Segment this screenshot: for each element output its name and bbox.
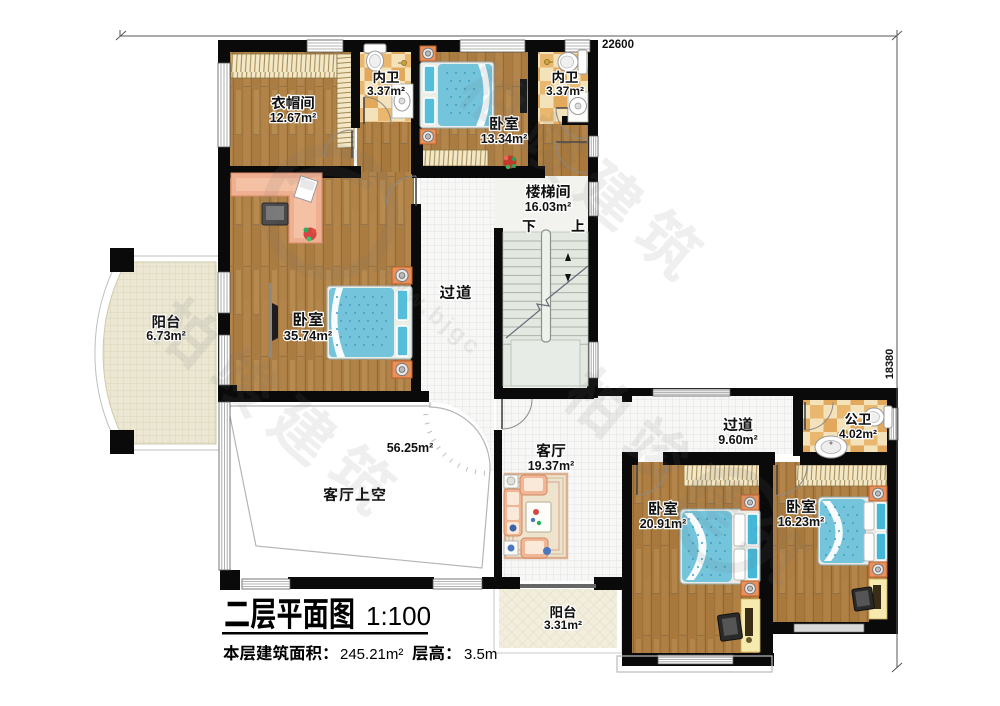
svg-text:3.31m²: 3.31m² — [544, 618, 582, 632]
svg-text:16.03m²: 16.03m² — [525, 200, 572, 214]
svg-text:35.74m²: 35.74m² — [284, 328, 333, 343]
svg-text:4.02m²: 4.02m² — [839, 427, 877, 441]
svg-text:56.25m²: 56.25m² — [387, 441, 434, 455]
svg-text:19.37m²: 19.37m² — [528, 459, 575, 473]
svg-text:3.37m²: 3.37m² — [546, 84, 584, 98]
svg-text:12.67m²: 12.67m² — [270, 111, 317, 125]
svg-text:16.23m²: 16.23m² — [778, 515, 825, 529]
svg-text:18380: 18380 — [884, 349, 896, 380]
svg-text:245.21m²: 245.21m² — [340, 646, 403, 663]
svg-text:3.5m: 3.5m — [464, 646, 497, 663]
svg-text:9.60m²: 9.60m² — [718, 433, 758, 447]
svg-text:1:100: 1:100 — [366, 601, 431, 631]
svg-text:3.37m²: 3.37m² — [367, 84, 405, 98]
svg-text:22600: 22600 — [602, 39, 634, 51]
